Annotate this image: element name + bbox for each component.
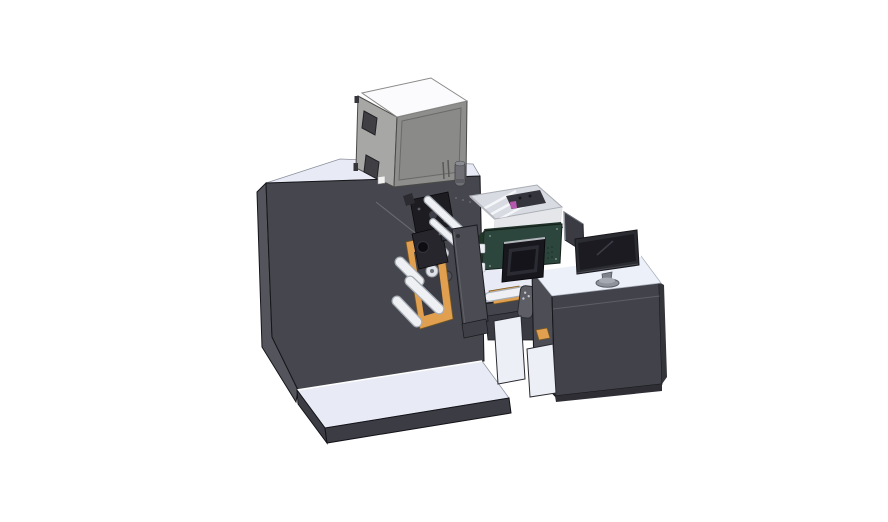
module-screw <box>556 228 558 230</box>
exhaust-cylinder-band <box>455 179 465 183</box>
operator-desk <box>527 256 667 402</box>
side-panel-edge <box>564 212 565 240</box>
vent-slot <box>448 160 449 177</box>
module-screw <box>555 258 557 260</box>
exhaust-cylinder-cap <box>455 161 465 166</box>
hinge <box>354 163 359 171</box>
roller-end-axle <box>430 269 434 273</box>
hinge <box>355 96 360 103</box>
printhead-hub <box>418 242 429 253</box>
monitor-stand-base-top <box>599 278 615 284</box>
vent-slot <box>443 162 444 179</box>
screw-dot <box>462 199 464 201</box>
module-screw <box>489 235 491 237</box>
module-screw <box>489 265 491 267</box>
desk-front-face <box>552 282 662 396</box>
panel-hole <box>456 234 460 238</box>
internal-detail <box>529 195 532 198</box>
control-display-screen <box>510 249 536 272</box>
cad-render-canvas <box>0 0 888 522</box>
top-enclosure-box <box>354 78 468 187</box>
screw-dot <box>469 201 471 203</box>
screw-dot <box>455 197 457 199</box>
shelf-orange-part <box>536 328 550 340</box>
enclosure-label-plate <box>378 176 385 184</box>
desk-open-shelf <box>527 344 556 397</box>
magenta-component <box>510 201 517 209</box>
internal-detail <box>519 197 522 200</box>
machine-assembly-render <box>0 0 888 522</box>
interior-shelf-panel <box>494 316 525 384</box>
bolt <box>418 208 421 211</box>
